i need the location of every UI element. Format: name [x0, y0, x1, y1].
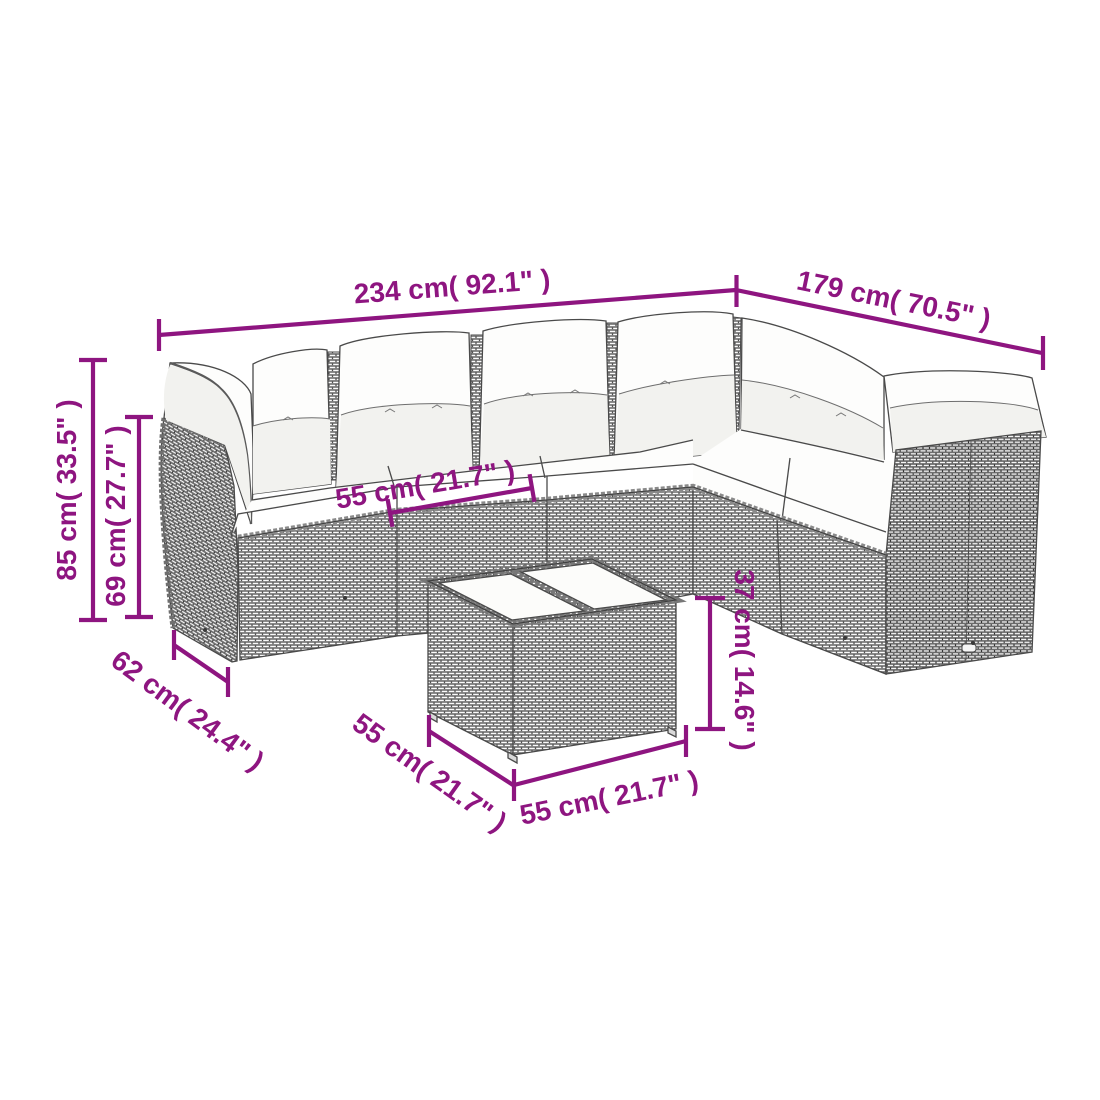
- svg-text:85 cm( 33.5" ): 85 cm( 33.5" ): [51, 399, 82, 580]
- svg-text:69 cm( 27.7" ): 69 cm( 27.7" ): [100, 425, 131, 606]
- svg-text:37 cm( 14.6" ): 37 cm( 14.6" ): [729, 569, 760, 750]
